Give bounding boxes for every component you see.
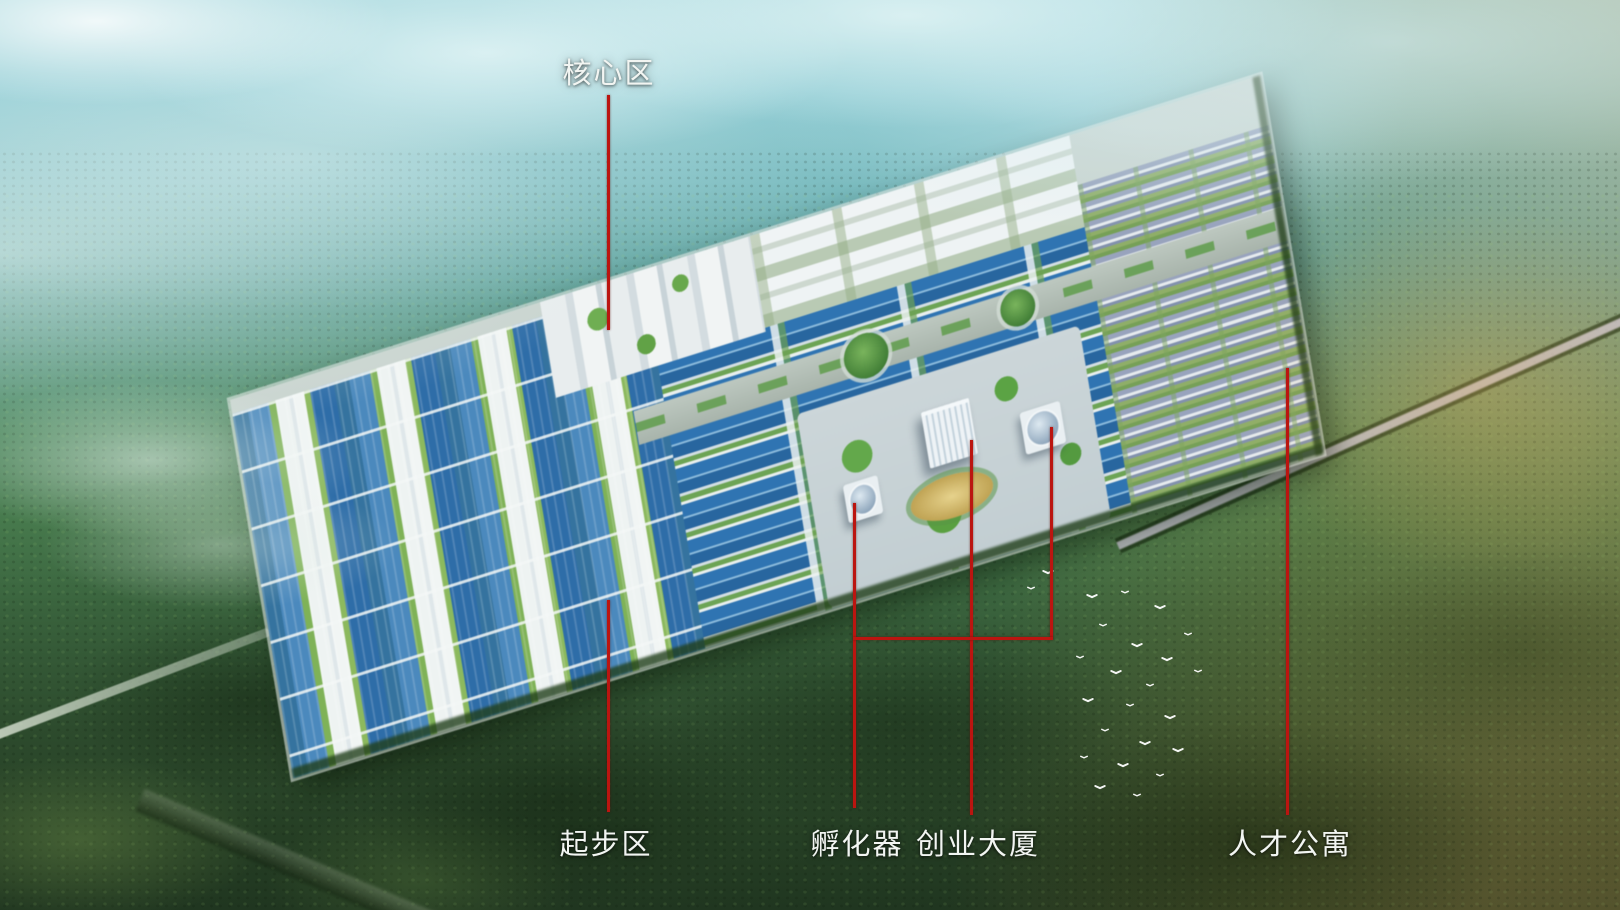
bird-icon	[1161, 655, 1173, 663]
bird-icon	[1121, 589, 1129, 595]
label-starter-area: 起步区	[559, 821, 652, 863]
bird-icon	[1146, 682, 1154, 688]
bird-icon	[1139, 739, 1151, 747]
bird-icon	[1094, 783, 1106, 791]
label-talent-apartments: 人才公寓	[1228, 821, 1352, 863]
dome-roof	[846, 479, 880, 520]
bird-icon	[1101, 727, 1109, 733]
bird-icon	[1164, 713, 1176, 721]
leader-line-incubator	[853, 503, 856, 808]
bird-icon	[1099, 622, 1107, 628]
leader-line-starter-area	[607, 600, 610, 812]
leader-line-horizontal-connector	[853, 637, 1053, 640]
bird-icon	[1184, 631, 1192, 637]
bird-icon	[1126, 702, 1134, 708]
bird-icon	[1117, 761, 1129, 769]
label-incubator: 孵化器	[810, 821, 903, 863]
bird-icon	[1082, 696, 1094, 704]
bird-icon	[1086, 592, 1098, 600]
bird-icon	[1154, 603, 1166, 611]
bird-icon	[1076, 654, 1084, 660]
aerial-masterplan-render: 核心区 起步区 孵化器 创业大厦 人才公寓	[0, 0, 1620, 910]
leader-line-talent-apartments	[1286, 368, 1289, 815]
leader-line-startup-tower	[970, 440, 973, 815]
dome-roof	[1023, 405, 1063, 452]
leader-line-core-area	[607, 95, 610, 330]
leader-line-right-connector	[1050, 427, 1053, 639]
bird-icon	[1110, 668, 1122, 676]
label-core-area: 核心区	[562, 50, 655, 92]
bird-icon	[1027, 585, 1035, 591]
bird-icon	[1172, 746, 1184, 754]
bird-icon	[1156, 772, 1164, 778]
bird-icon	[1194, 668, 1202, 674]
label-startup-tower: 创业大厦	[916, 821, 1040, 863]
bird-icon	[1133, 792, 1141, 798]
bird-icon	[1131, 641, 1143, 649]
bird-icon	[1080, 754, 1088, 760]
